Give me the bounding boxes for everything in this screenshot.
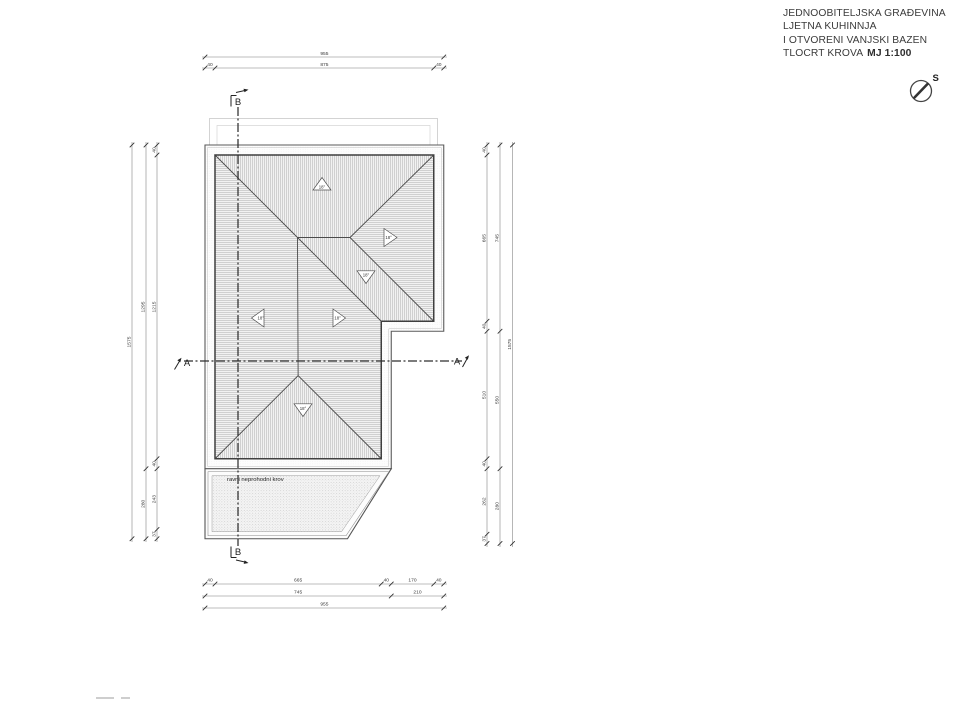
pitched-roof — [205, 145, 444, 469]
roof-plan-drawing: 18° 18° 18° 18° 18° 18° ravni neprohodni… — [0, 0, 960, 702]
dims-right: 40 665 40 510 40 262 37 745 550 280 1575 — [481, 147, 513, 542]
title-line-3: I OTVORENI VANJSKI BAZEN — [783, 34, 959, 47]
north-arrow: S — [899, 64, 947, 108]
dim-label: 40 — [151, 147, 157, 153]
dim-label: 665 — [294, 578, 302, 584]
section-marker-a-left: A — [175, 358, 191, 370]
title-line-1: JEDNOOBITELJSKA GRAĐEVINA — [783, 7, 959, 20]
dim-label: 745 — [494, 234, 500, 242]
dim-label: 40 — [436, 578, 442, 584]
section-marker-b-top: B — [231, 89, 249, 108]
dims-top: 955 40 875 40 — [207, 51, 442, 68]
dim-label: 550 — [494, 396, 500, 404]
dim-label: 955 — [320, 51, 328, 57]
dim-label: 280 — [494, 502, 500, 510]
slope-label-south: 18° — [300, 406, 307, 411]
dim-label: 40 — [481, 147, 487, 153]
section-label-a-right: A — [454, 357, 461, 368]
title-line-4: TLOCRT KROVAMJ 1:100 — [783, 47, 959, 60]
dim-label: 40 — [436, 62, 442, 68]
drawing-name: TLOCRT KROVA — [783, 48, 863, 59]
drawing-sheet: 18° 18° 18° 18° 18° 18° ravni neprohodni… — [0, 0, 960, 702]
section-label-b-top: B — [235, 97, 241, 108]
dim-label: 665 — [481, 234, 487, 242]
title-block: JEDNOOBITELJSKA GRAĐEVINA LJETNA KUHINNJ… — [783, 7, 959, 61]
dim-label: 170 — [408, 578, 416, 584]
dim-label: 40 — [481, 461, 487, 467]
dim-label: 1575 — [507, 339, 513, 350]
dim-label: 1215 — [151, 301, 157, 312]
drawing-scale: MJ 1:100 — [867, 48, 911, 59]
flat-roof-label: ravni neprohodni krov — [227, 477, 284, 483]
dim-label: 40 — [207, 62, 213, 68]
dim-label: 875 — [320, 62, 328, 68]
dim-label: 745 — [294, 590, 302, 596]
dim-label: 210 — [413, 590, 421, 596]
dim-label: 37 — [151, 531, 157, 537]
slope-label-west: 18° — [257, 316, 264, 321]
dim-label: 243 — [151, 495, 157, 503]
flat-roof: ravni neprohodni krov — [205, 469, 391, 539]
north-arrow-needle-icon — [915, 84, 928, 98]
dims-left: 1575 1295 280 40 1215 40 243 37 — [126, 147, 157, 537]
title-line-2: LJETNA KUHINNJA — [783, 20, 959, 33]
section-label-b-bottom: B — [235, 547, 241, 558]
slope-label-southeast: 18° — [363, 273, 370, 278]
section-marker-b-bottom: B — [231, 547, 249, 564]
dim-label: 40 — [384, 578, 390, 584]
dim-label: 1575 — [126, 336, 132, 347]
dim-label: 1295 — [140, 301, 146, 312]
dim-label: 40 — [151, 461, 157, 467]
slope-label-east: 18° — [385, 235, 392, 240]
dim-label: 955 — [320, 602, 328, 608]
dim-label: 37 — [481, 536, 487, 542]
dim-label: 40 — [207, 578, 213, 584]
slope-label-north: 18° — [319, 184, 326, 189]
under-structure-outline — [210, 119, 438, 147]
roof-planes — [215, 155, 434, 459]
dim-label: 510 — [481, 391, 487, 399]
slope-label-lower-east: 18° — [334, 316, 341, 321]
dim-label: 262 — [481, 497, 487, 505]
dims-bottom: 40 665 40 170 40 745 210 955 — [207, 578, 442, 608]
north-label: S — [933, 73, 939, 84]
section-label-a-left: A — [184, 358, 191, 369]
dim-label: 40 — [481, 323, 487, 329]
dim-label: 280 — [140, 499, 146, 507]
